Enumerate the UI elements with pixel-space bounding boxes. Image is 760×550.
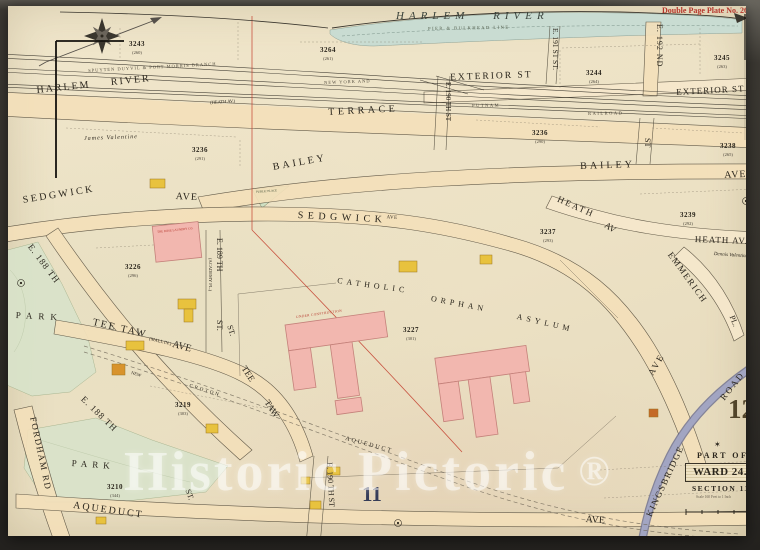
- block-number: 3210(344): [93, 477, 137, 498]
- sedgwick-center-sup: AVE: [386, 215, 397, 221]
- asylum-building-east: [435, 345, 538, 441]
- block-number: 3237(293): [526, 222, 570, 243]
- laundry-building: [152, 222, 202, 263]
- street-label-e189: E. 189 TH: [215, 238, 224, 271]
- railroad-putnam-label: PUTNAM: [472, 103, 500, 108]
- railroad-railroad-label: RAILROAD: [588, 110, 623, 116]
- cartouche-part-of: PART OF: [697, 451, 748, 460]
- street-label-e191: E. 191 ST ST.: [551, 28, 560, 70]
- street-label-sedgwick-west-ave: AVE: [175, 191, 198, 203]
- street-label-heath-east: HEATH AV.: [695, 234, 749, 246]
- street-label-e189-academy: (ACADEMY PL.): [208, 258, 213, 291]
- block-number: 3238(265): [706, 136, 750, 157]
- block-number: 3243(260): [115, 34, 159, 55]
- street-label-e192: E. 192 ND: [655, 24, 664, 67]
- block-number: 3239(292): [666, 205, 710, 226]
- street-label-st192: ST: [643, 138, 652, 147]
- block-number: 3236(291): [178, 140, 222, 161]
- map-content: Double Page Plate No. 26 HARLEM RIVER PI…: [0, 0, 760, 550]
- block-number: 3245(263): [700, 48, 744, 69]
- block-number: 3244(264): [572, 63, 616, 84]
- cartouche-section: SECTION 11: [692, 484, 750, 493]
- block-number: 3219(303): [161, 395, 205, 416]
- block-number: 3236(290): [518, 123, 562, 144]
- street-label-bailey-east: BAILEY: [580, 159, 635, 172]
- street-label-bailey-east-ave: AVE: [724, 169, 747, 181]
- street-label-e189-st: ST.: [215, 320, 224, 331]
- adjoining-plate-number-bottom: 11: [362, 482, 382, 507]
- cartouche-star-icon: ✶: [714, 440, 721, 449]
- block-number: 3227(301): [389, 320, 433, 341]
- block-number: 3226(296): [111, 257, 155, 278]
- river-label: HARLEM RIVER: [396, 10, 549, 22]
- adjoining-plate-number-right: 12: [728, 394, 755, 425]
- street-label-aqueduct-ave-east: AVE: [585, 514, 605, 526]
- block-number: 3264(261): [306, 40, 350, 61]
- plate-title: Double Page Plate No. 26: [628, 6, 748, 15]
- cartouche-scale-note: Scale 160 Feet to 1 Inch: [696, 495, 731, 499]
- asylum-building-west: [285, 311, 397, 420]
- photo-backdrop: Double Page Plate No. 26 HARLEM RIVER PI…: [0, 0, 760, 550]
- street-label-e190-north: E. 190 TH ST: [444, 82, 452, 121]
- cartouche-ward: WARD 24.: [685, 463, 755, 482]
